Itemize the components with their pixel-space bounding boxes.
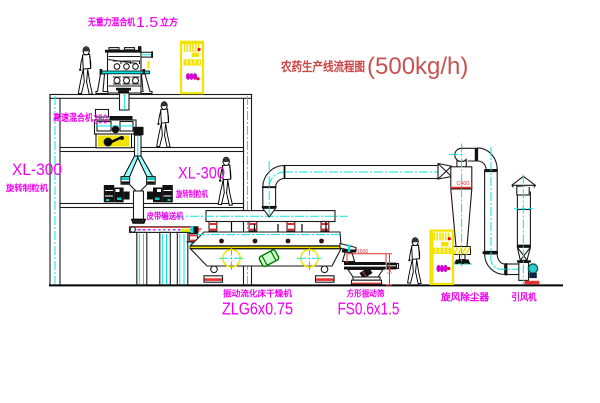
svg-text:ZLG6x0.75: ZLG6x0.75: [222, 299, 293, 319]
svg-text:振动流化床干燥机: 振动流化床干燥机: [223, 289, 292, 299]
svg-text:无重力混合机: 无重力混合机: [87, 17, 135, 29]
svg-text:方形振动筛: 方形振动筛: [347, 289, 385, 299]
svg-text:旋转制粒机: 旋转制粒机: [5, 183, 48, 193]
svg-text:350: 350: [94, 112, 108, 127]
svg-text:XL-300: XL-300: [178, 165, 225, 183]
svg-text:FS0.6x1.5: FS0.6x1.5: [338, 299, 400, 319]
svg-text:高速混合机: 高速混合机: [53, 112, 93, 124]
svg-text:1.5: 1.5: [136, 15, 158, 31]
svg-text:C400: C400: [457, 181, 470, 187]
svg-text:540: 540: [388, 266, 394, 275]
svg-text:1500: 1500: [357, 249, 368, 255]
svg-text:农药生产线流程图: 农药生产线流程图: [280, 59, 365, 74]
svg-text:旋风除尘器: 旋风除尘器: [440, 292, 489, 304]
svg-text:引风机: 引风机: [512, 292, 537, 304]
svg-text:XL-300: XL-300: [12, 161, 62, 179]
svg-text:立方: 立方: [160, 17, 178, 29]
svg-text:(500kg/h): (500kg/h): [367, 53, 468, 80]
svg-text:皮带输送机: 皮带输送机: [146, 211, 184, 221]
svg-text:旋转制粒机: 旋转制粒机: [175, 189, 208, 199]
